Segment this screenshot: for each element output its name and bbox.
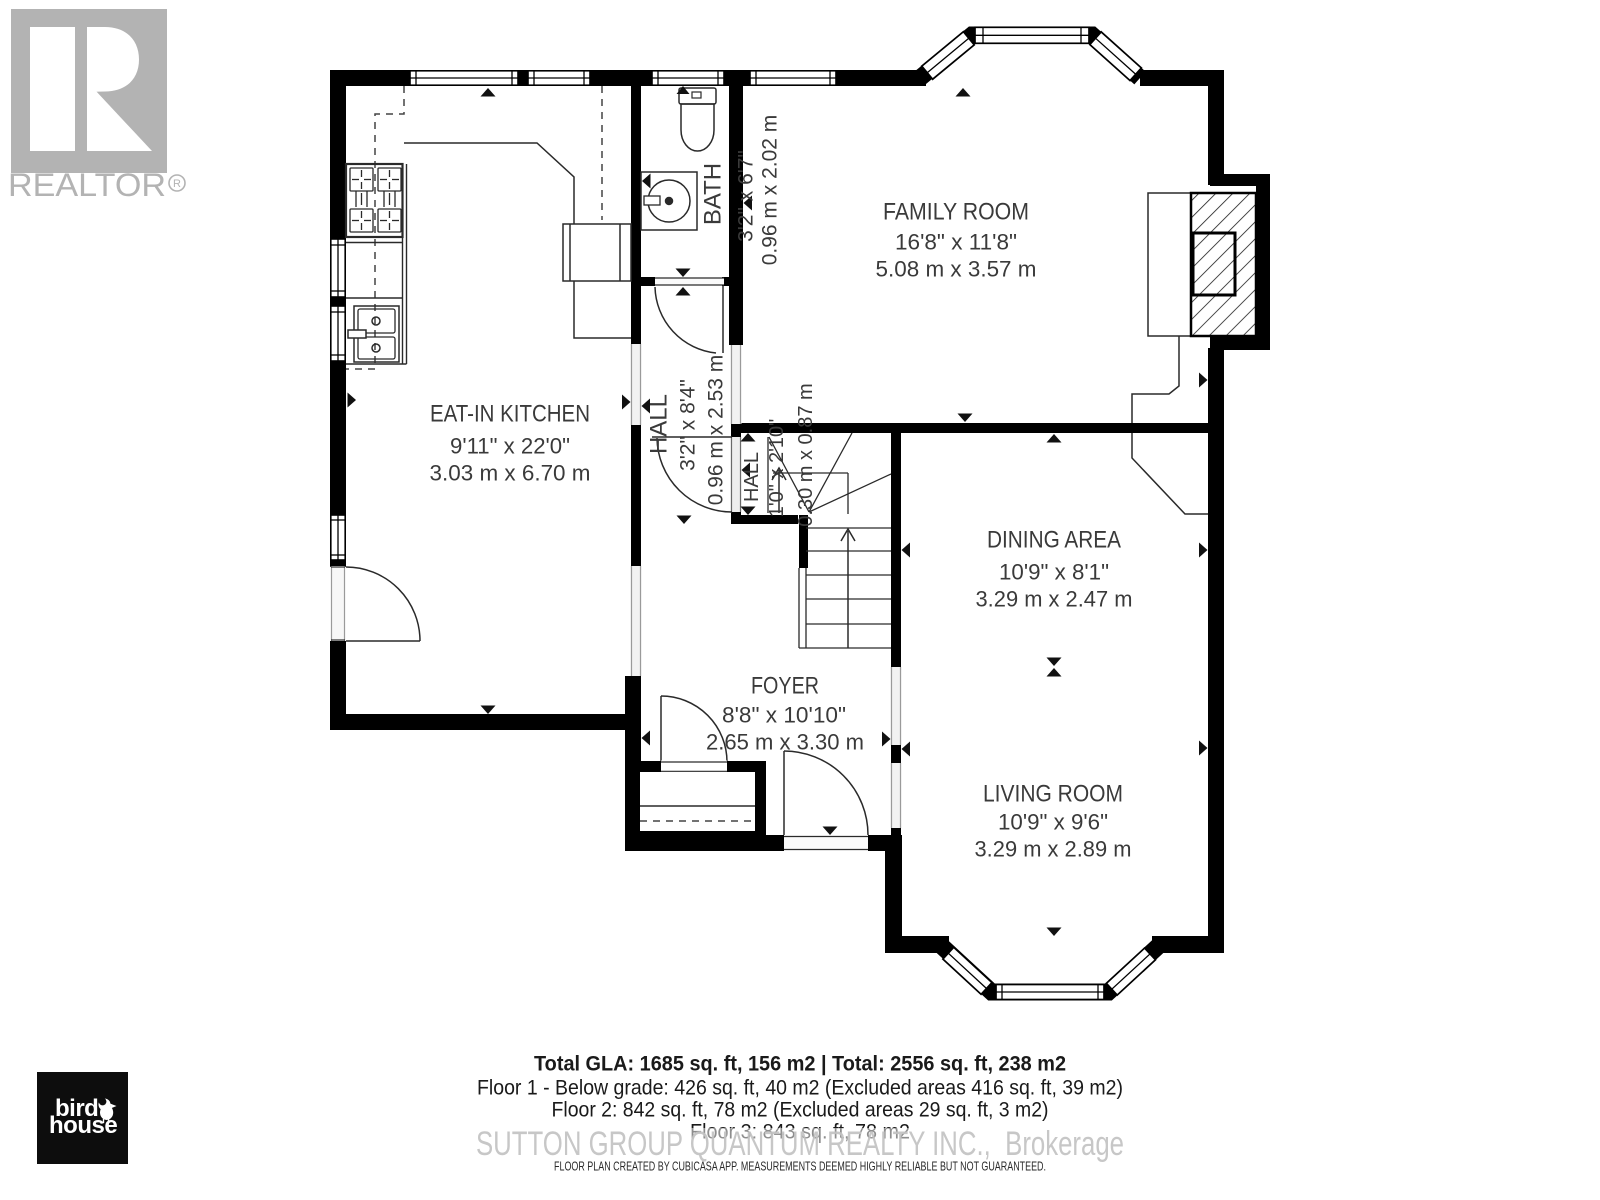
svg-text:5.08 m x 3.57 m: 5.08 m x 3.57 m [876,257,1037,282]
svg-text:3'2" x 8'4": 3'2" x 8'4" [677,379,700,471]
svg-text:DINING AREA: DINING AREA [987,527,1121,554]
svg-text:0.96 m x 2.02 m: 0.96 m x 2.02 m [759,115,782,266]
svg-text:SUTTON GROUP QUANTUM REALTY IN: SUTTON GROUP QUANTUM REALTY INC., Broker… [476,1125,1124,1163]
svg-text:10'9" x 8'1": 10'9" x 8'1" [999,560,1109,585]
svg-text:3'2" x 6'7": 3'2" x 6'7" [735,150,758,242]
svg-text:EAT-IN KITCHEN: EAT-IN KITCHEN [430,401,590,428]
svg-text:10'9" x 9'6": 10'9" x 9'6" [998,810,1108,835]
svg-text:3.29 m x 2.89 m: 3.29 m x 2.89 m [975,837,1132,862]
svg-text:Total GLA: 1685 sq. ft, 156 m2: Total GLA: 1685 sq. ft, 156 m2 | Total: … [534,1053,1066,1076]
svg-text:16'8" x 11'8": 16'8" x 11'8" [895,230,1017,255]
svg-text:R: R [173,178,181,190]
svg-text:HALL: HALL [741,452,763,502]
svg-text:FAMILY ROOM: FAMILY ROOM [883,199,1029,226]
svg-text:0.96 m x 2.53 m: 0.96 m x 2.53 m [705,355,728,506]
svg-text:1'0" x 2'10": 1'0" x 2'10" [766,419,788,518]
svg-text:2.65 m x 3.30 m: 2.65 m x 3.30 m [706,730,864,755]
svg-text:8'8" x 10'10": 8'8" x 10'10" [722,703,846,728]
svg-text:3.03 m x 6.70 m: 3.03 m x 6.70 m [430,461,591,486]
svg-text:Floor 1 - Below grade: 426 sq.: Floor 1 - Below grade: 426 sq. ft, 40 m2… [477,1077,1123,1100]
svg-text:9'11" x 22'0": 9'11" x 22'0" [450,434,570,459]
svg-text:0.30 m x 0.87 m: 0.30 m x 0.87 m [795,383,817,526]
svg-text:3.29 m x 2.47 m: 3.29 m x 2.47 m [976,587,1133,612]
svg-text:FLOOR PLAN CREATED BY CUBICASA: FLOOR PLAN CREATED BY CUBICASA APP. MEAS… [554,1159,1046,1174]
svg-text:LIVING ROOM: LIVING ROOM [983,781,1123,808]
svg-text:HALL: HALL [646,394,673,454]
svg-text:FOYER: FOYER [751,673,819,700]
svg-text:Floor 2: 842 sq. ft, 78 m2 (Ex: Floor 2: 842 sq. ft, 78 m2 (Excluded are… [552,1099,1049,1122]
svg-text:REALTOR: REALTOR [8,167,166,203]
svg-text:BATH: BATH [700,163,727,225]
